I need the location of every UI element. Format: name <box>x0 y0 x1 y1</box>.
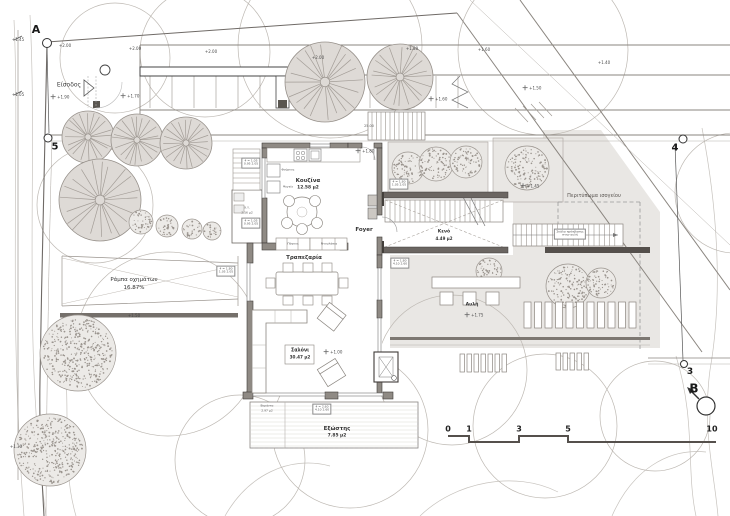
opening-tag: 4 = 1.80 1.05 2.05 <box>389 179 408 190</box>
note-fridge: Ψυγείο <box>283 185 293 188</box>
elevation-point: +1.60 <box>429 96 448 101</box>
room-label-veranda: Βεράντα <box>260 404 273 407</box>
ramp-slope: 16.87% <box>124 285 145 291</box>
room-area-living: 30.47 μ2 <box>290 356 311 361</box>
room-area-wc: 2.16 μ2 <box>241 211 252 214</box>
elevation-point: +1.70 <box>121 93 140 98</box>
dimension-25: 25.00 <box>364 125 374 129</box>
stair-access-note: Σκάλα πρόσβασης στην αυλή <box>554 229 586 240</box>
entrance-label: Είσοδος <box>57 83 81 90</box>
opening-tag: 4 = 1.80 4.10 2.60 <box>390 258 409 269</box>
site-plan-canvas: A 5 4 3 B Κουζίνα 12.58 μ2 Foyer Τραπεζα… <box>0 0 730 516</box>
opening-tag: 4 = 1.05 0.95 2.05 <box>241 158 260 169</box>
scale-label-3: 3 <box>516 426 522 435</box>
opening-tag-line2: 0.95 2.05 <box>244 223 258 227</box>
elevation-point: +1.50 <box>523 85 542 90</box>
room-label-dining: Τραπεζαρία <box>286 255 322 261</box>
scale-label-1: 1 <box>466 426 472 435</box>
room-area-veranda: 2.97 μ2 <box>261 409 272 412</box>
room-label-kitchen: Κουζίνα <box>296 178 321 184</box>
elevation-point: +1.80 <box>356 148 375 153</box>
opening-tag-line2: 4.10 2.60 <box>393 263 407 267</box>
note-oven: Φούρνος <box>281 168 294 171</box>
footprint-label: Περιτύπωμα ισογείου <box>567 194 621 200</box>
elevation-point: +1.90 <box>51 94 70 99</box>
opening-tag-line2: 1.05 2.05 <box>392 184 406 188</box>
elevation-point: +1.50 <box>128 314 140 318</box>
scale-label-0: 0 <box>445 426 451 435</box>
elevation-point: +1.30 <box>10 445 22 449</box>
section-marker-a: A <box>32 24 41 36</box>
opening-tag: 4 = 1.05 0.95 2.05 <box>241 218 260 229</box>
elevation-point: +2.00 <box>59 44 71 48</box>
vehicle-ramp <box>60 256 238 318</box>
section-marker-b: B <box>689 382 698 395</box>
section-marker-5: 5 <box>52 141 59 152</box>
elevation-point: +2.00 <box>205 50 217 54</box>
scale-label-5: 5 <box>565 426 571 435</box>
elevation-point: +1.80 <box>406 47 418 51</box>
elevation-point: +1.40 <box>598 61 610 65</box>
note-counter: Πάγκος <box>287 242 298 245</box>
opening-tag: 4 = 2.60 4.10 2.60 <box>312 404 331 415</box>
section-marker-3: 3 <box>687 367 693 377</box>
room-area-balcony: 7.85 μ2 <box>328 435 347 440</box>
elevation-point: +2.00 <box>312 56 324 60</box>
room-label-living: Σαλόνι <box>291 348 309 353</box>
site-plan-drawing <box>0 0 730 516</box>
stair-access-note-line2: στην αυλή <box>556 234 583 238</box>
room-label-foyer: Foyer <box>355 227 372 233</box>
note-cabinets: Ντουλάπια <box>321 242 337 245</box>
scale-label-10: 10 <box>706 426 717 435</box>
opening-tag-line2: 4.10 2.60 <box>315 409 329 413</box>
elevation-point: +1.60 <box>478 48 490 52</box>
opening-tag: 4 = 1.80 1.05 2.05 <box>216 266 235 277</box>
opening-tag-line2: 0.95 2.05 <box>244 163 258 167</box>
room-label-wc: Χ.Υ. <box>244 206 250 209</box>
room-area-void: 4.49 μ2 <box>436 237 453 241</box>
section-marker-4: 4 <box>672 142 679 153</box>
elevation-point: +1.45 <box>12 38 24 42</box>
room-label-balcony: Εξώστης <box>324 426 351 432</box>
elevation-point: +1.05 <box>12 93 24 97</box>
ramp-label: Ράμπα οχημάτων <box>110 277 157 283</box>
elevation-point: +1.00 <box>324 349 343 354</box>
elevation-point: +1.75 <box>465 312 484 317</box>
room-label-courtyard: Αυλή <box>466 302 479 307</box>
room-label-void: Κενό <box>438 229 450 234</box>
scale-bar <box>448 436 716 442</box>
opening-tag-line2: 1.05 2.05 <box>219 271 233 275</box>
fireplace <box>374 352 398 382</box>
room-area-kitchen: 12.58 μ2 <box>297 187 319 192</box>
elevation-point: +2.00 <box>129 47 141 51</box>
elevation-point: +1.45 <box>521 183 540 188</box>
